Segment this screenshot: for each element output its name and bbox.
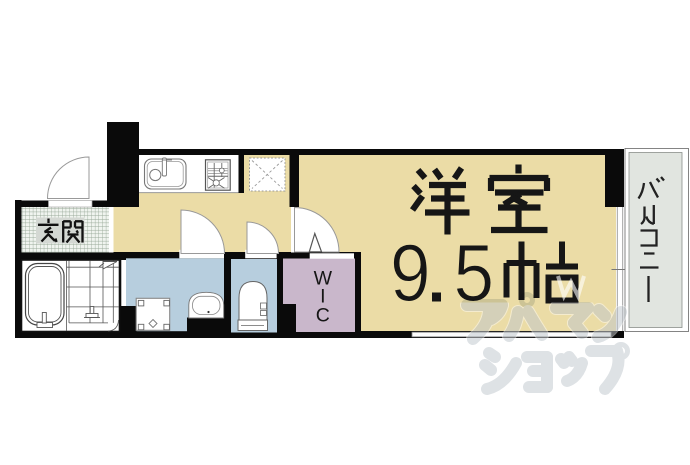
- svg-text:9: 9: [390, 228, 431, 318]
- svg-text:C: C: [316, 305, 330, 327]
